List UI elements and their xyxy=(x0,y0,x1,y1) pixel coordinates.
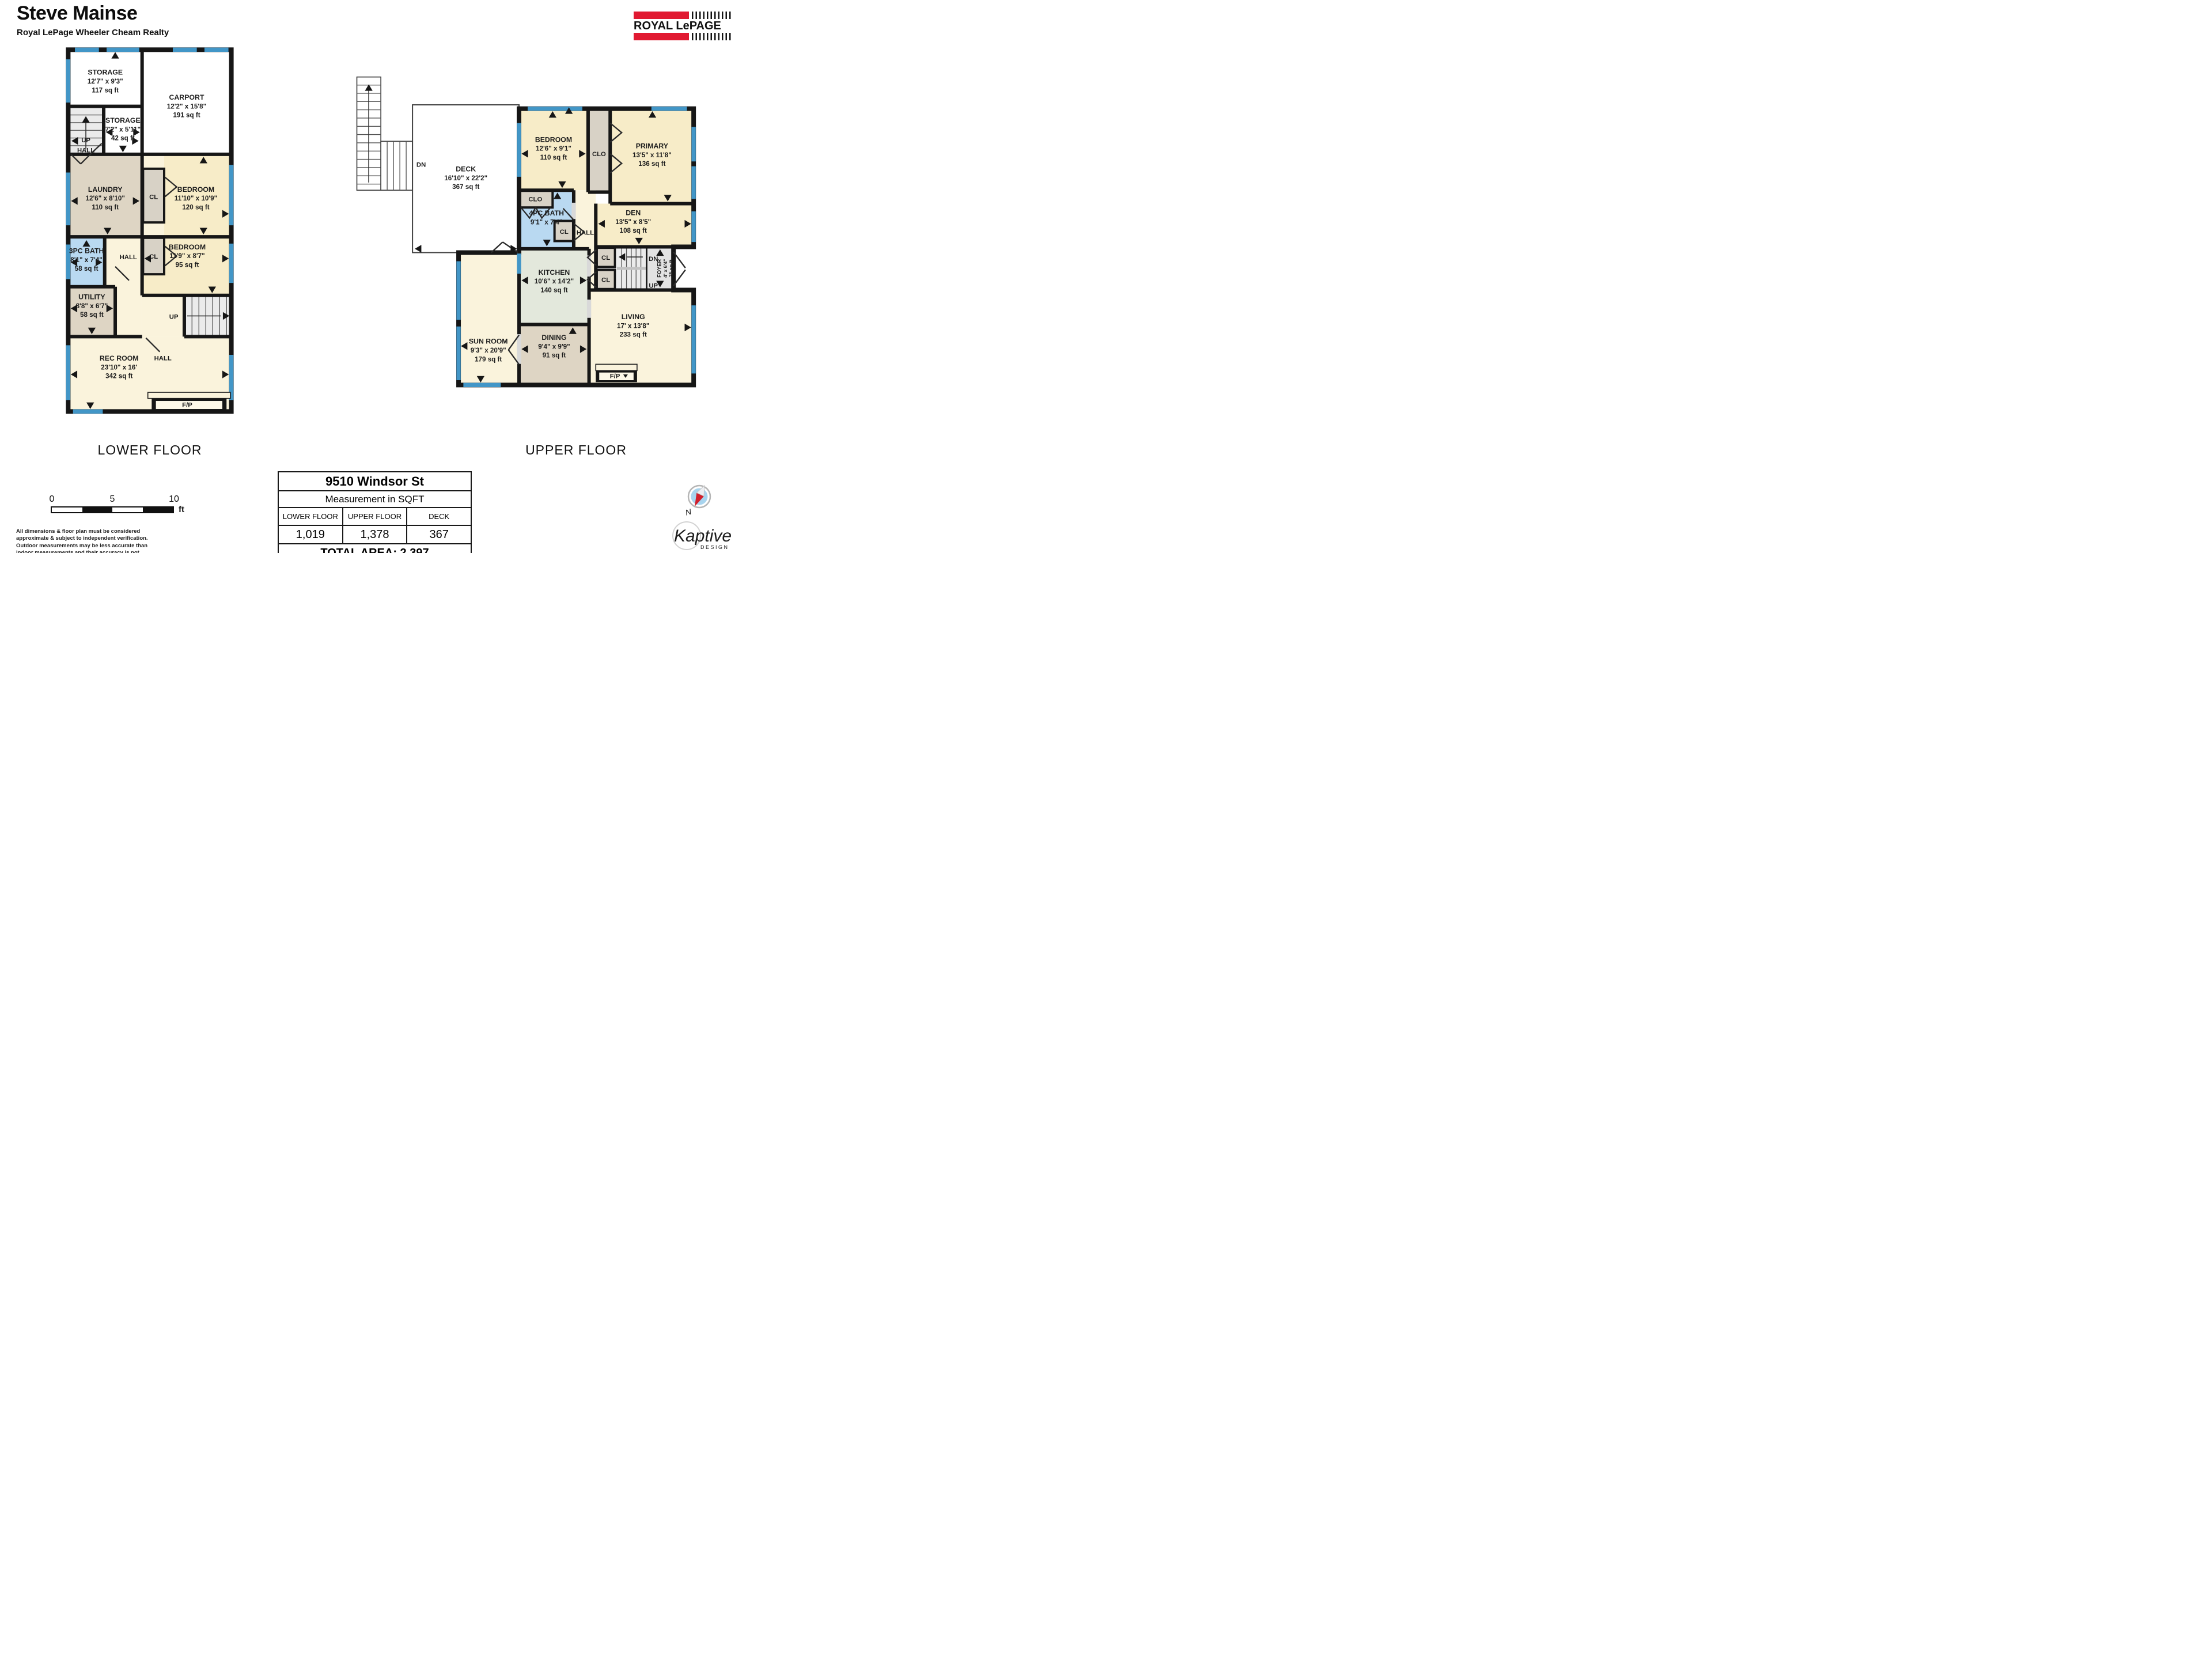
svg-text:12'2" x 15'8": 12'2" x 15'8" xyxy=(167,103,206,110)
svg-text:95 sq ft: 95 sq ft xyxy=(176,261,199,268)
label-up-entry: UP xyxy=(81,137,90,144)
room-label-sunroom: SUN ROOM xyxy=(469,338,508,346)
svg-text:13'5" x 11'8": 13'5" x 11'8" xyxy=(632,151,672,159)
room-label-kitchen: KITCHEN xyxy=(539,268,570,276)
upper-floor-plan: DN DECK 16'10" x 22'2" 367 sq ft BEDROOM… xyxy=(349,73,706,397)
room-label-carport: CARPORT xyxy=(169,93,204,101)
svg-text:120 sq ft: 120 sq ft xyxy=(182,204,209,211)
svg-text:367 sq ft: 367 sq ft xyxy=(452,183,479,191)
room-label-rec: REC ROOM xyxy=(100,354,139,362)
svg-text:9'4" x 9'9": 9'4" x 9'9" xyxy=(538,343,570,350)
room-label-deck: DECK xyxy=(456,165,476,173)
logo-text: ROYAL LePAGE xyxy=(634,20,732,32)
label-hall-mid: HALL xyxy=(120,254,137,261)
closet-clo-1 xyxy=(588,109,610,192)
table-col-lower: LOWER FLOOR xyxy=(279,508,343,525)
room-label-bedroom-upper: BEDROOM xyxy=(535,135,572,143)
label-hall-low: HALL xyxy=(154,355,172,362)
room-label-den: DEN xyxy=(626,209,641,217)
svg-text:16'10" x 22'2": 16'10" x 22'2" xyxy=(444,175,487,182)
svg-text:117 sq ft: 117 sq ft xyxy=(92,86,119,94)
scale-ticks: 0 5 10 xyxy=(51,494,200,505)
svg-text:110 sq ft: 110 sq ft xyxy=(92,204,119,211)
royal-lepage-logo: ROYAL LePAGE xyxy=(634,12,732,40)
table-val-lower: 1,019 xyxy=(279,526,343,543)
svg-text:11'9" x 8'7": 11'9" x 8'7" xyxy=(169,252,204,260)
room-sunroom xyxy=(459,252,519,385)
compass-north-label: N xyxy=(684,507,693,517)
caption-lower-floor: LOWER FLOOR xyxy=(58,442,242,458)
label-cl-hall: CL xyxy=(560,229,569,236)
table-total: TOTAL AREA: 2,397 xyxy=(279,544,471,553)
svg-text:8'8" x 6'7": 8'8" x 6'7" xyxy=(76,302,108,310)
svg-text:23'10" x 16': 23'10" x 16' xyxy=(101,363,137,371)
watermark-sub: DESIGN xyxy=(700,544,729,550)
logo-stripes-icon xyxy=(692,12,732,19)
watermark-name: Kaptive xyxy=(674,527,732,546)
room-label-foyer: FOYER xyxy=(657,259,662,277)
label-fp-lower: F/P xyxy=(182,402,192,409)
svg-text:12'7" x 9'3": 12'7" x 9'3" xyxy=(88,78,123,85)
svg-text:58 sq ft: 58 sq ft xyxy=(80,311,104,319)
table-val-upper: 1,378 xyxy=(343,526,408,543)
svg-text:136 sq ft: 136 sq ft xyxy=(638,160,665,168)
svg-text:58 sq ft: 58 sq ft xyxy=(75,265,99,272)
label-dn-deck: DN xyxy=(416,162,426,169)
scale-unit: ft xyxy=(179,505,184,514)
label-cl-2: CL xyxy=(149,253,158,260)
svg-text:12'6" x 9'1": 12'6" x 9'1" xyxy=(536,145,571,153)
scale-tick-0: 0 xyxy=(50,494,55,505)
scale-tick-10: 10 xyxy=(169,494,179,505)
label-hall-upper: HALL xyxy=(577,230,594,237)
table-val-deck: 367 xyxy=(407,526,471,543)
svg-text:4' x 6'4": 4' x 6'4" xyxy=(662,259,668,278)
header: Steve Mainse Royal LePage Wheeler Cheam … xyxy=(17,3,169,37)
logo-bottom-row xyxy=(634,33,732,40)
svg-text:8'1" x 7'4": 8'1" x 7'4" xyxy=(70,256,103,264)
scale-tick-5: 5 xyxy=(110,494,115,505)
svg-text:233 sq ft: 233 sq ft xyxy=(620,331,647,339)
floor-plan-page: Steve Mainse Royal LePage Wheeler Cheam … xyxy=(0,0,737,553)
disclaimer-text: All dimensions & floor plan must be cons… xyxy=(16,528,165,553)
label-up-foyer: UP xyxy=(649,282,658,289)
room-label-laundry: LAUNDRY xyxy=(88,185,123,194)
lower-room-fills xyxy=(68,50,231,411)
svg-text:91 sq ft: 91 sq ft xyxy=(543,352,566,359)
table-subtitle: Measurement in SQFT xyxy=(279,491,471,508)
table-header-row: LOWER FLOOR UPPER FLOOR DECK xyxy=(279,508,471,526)
label-cl-3: CL xyxy=(601,255,610,262)
svg-text:108 sq ft: 108 sq ft xyxy=(620,227,647,234)
room-label-utility: UTILITY xyxy=(78,293,105,301)
table-address: 9510 Windsor St xyxy=(279,472,471,491)
measurement-table: 9510 Windsor St Measurement in SQFT LOWE… xyxy=(278,471,472,553)
room-label-bedroom2: BEDROOM xyxy=(169,243,206,251)
room-label-bath-upper: 4PC BATH xyxy=(529,209,564,217)
label-hall-entry: HALL xyxy=(77,147,94,154)
svg-text:10'6" x 14'2": 10'6" x 14'2" xyxy=(535,278,574,285)
svg-text:7'2" x 5'11": 7'2" x 5'11" xyxy=(105,126,141,133)
svg-text:140 sq ft: 140 sq ft xyxy=(540,286,567,294)
label-fp-upper: F/P xyxy=(610,373,620,380)
label-up-low: UP xyxy=(169,313,179,320)
label-clo-2: CLO xyxy=(528,196,542,203)
compass-icon: N xyxy=(681,482,718,518)
svg-text:42 sq ft: 42 sq ft xyxy=(111,135,135,142)
logo-stripes-icon xyxy=(692,33,732,40)
logo-top-row xyxy=(634,12,732,19)
scale-bar: 0 5 10 ft xyxy=(51,494,200,514)
caption-upper-floor: UPPER FLOOR xyxy=(403,442,737,458)
svg-text:11'10" x 10'9": 11'10" x 10'9" xyxy=(175,195,217,202)
table-col-deck: DECK xyxy=(407,508,471,525)
svg-text:179 sq ft: 179 sq ft xyxy=(475,355,502,363)
table-col-upper: UPPER FLOOR xyxy=(343,508,408,525)
lower-floor-plan: STORAGE 12'7" x 9'3" 117 sq ft CARPORT 1… xyxy=(58,42,242,424)
logo-red-bar-icon xyxy=(634,12,689,19)
scale-bar-segments xyxy=(51,506,174,513)
agent-brokerage: Royal LePage Wheeler Cheam Realty xyxy=(17,28,169,37)
logo-red-bar-icon xyxy=(634,33,689,40)
label-cl-4: CL xyxy=(601,276,610,283)
svg-text:25 sq ft: 25 sq ft xyxy=(668,260,674,277)
svg-text:13'5" x 8'5": 13'5" x 8'5" xyxy=(615,218,651,226)
svg-text:12'6" x 8'10": 12'6" x 8'10" xyxy=(85,195,124,202)
room-label-primary: PRIMARY xyxy=(636,142,669,150)
label-clo-1: CLO xyxy=(592,151,606,158)
room-label-living: LIVING xyxy=(622,313,645,321)
svg-text:9'1" x 7'4": 9'1" x 7'4" xyxy=(531,219,562,226)
svg-text:191 sq ft: 191 sq ft xyxy=(173,112,200,119)
deck-stairs-icon xyxy=(357,77,413,191)
room-label-storage1: STORAGE xyxy=(88,69,123,77)
agent-name: Steve Mainse xyxy=(17,3,169,24)
table-value-row: 1,019 1,378 367 xyxy=(279,526,471,544)
room-label-dining: DINING xyxy=(541,334,566,342)
label-cl-1: CL xyxy=(149,194,158,201)
svg-text:17' x 13'8": 17' x 13'8" xyxy=(617,322,649,329)
kaptive-watermark: Kaptive DESIGN xyxy=(667,520,736,552)
svg-text:9'3" x 20'9": 9'3" x 20'9" xyxy=(471,347,506,354)
room-label-bath: 3PC BATH xyxy=(69,247,104,255)
svg-text:342 sq ft: 342 sq ft xyxy=(105,373,132,380)
room-label-bedroom1: BEDROOM xyxy=(177,185,214,194)
svg-text:110 sq ft: 110 sq ft xyxy=(540,154,567,161)
room-label-storage2: STORAGE xyxy=(105,116,141,124)
